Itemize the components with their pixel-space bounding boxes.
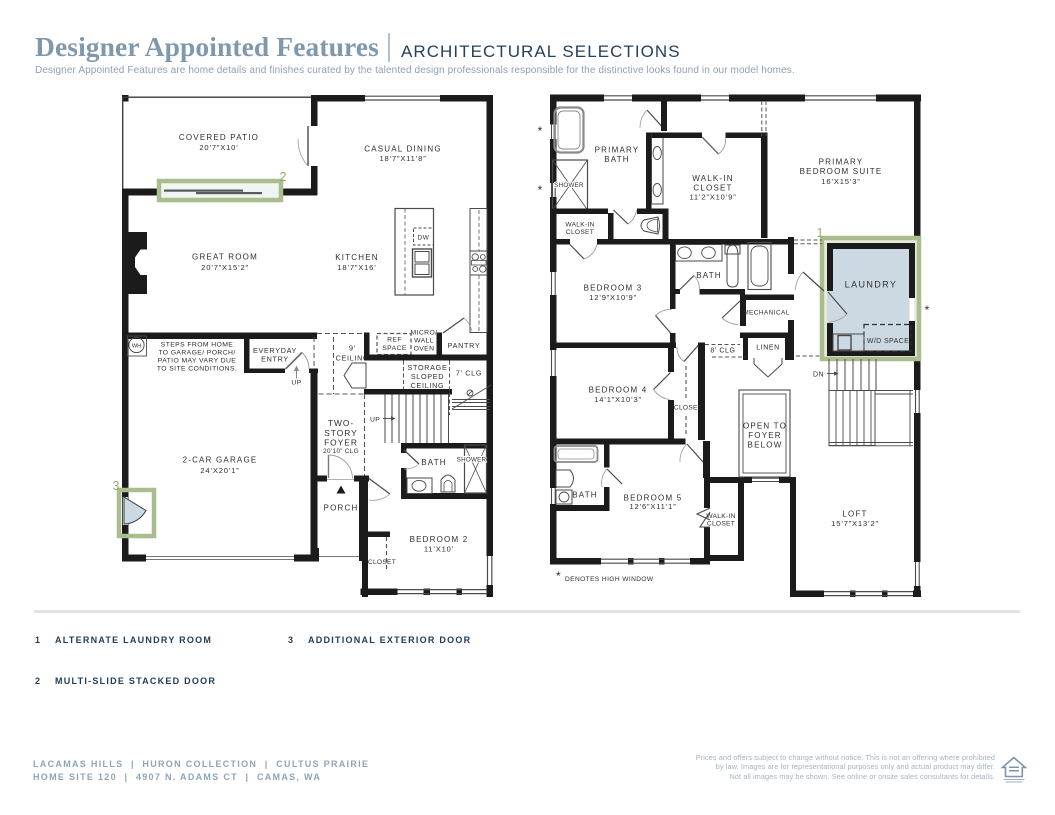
svg-text:7’ CLG: 7’ CLG [456,369,482,378]
svg-text:18’7”X11’8”: 18’7”X11’8” [379,154,426,163]
svg-text:*: * [538,124,543,138]
svg-text:24’X20’1”: 24’X20’1” [200,466,239,475]
svg-text:BEDROOM 2: BEDROOM 2 [410,535,469,544]
svg-text:STORAGE: STORAGE [408,363,448,372]
svg-text:20’10” CLG: 20’10” CLG [323,448,359,455]
svg-text:CASUAL DINING: CASUAL DINING [364,145,442,154]
svg-text:20’7”X15’2”: 20’7”X15’2” [201,263,249,272]
svg-text:TO SITE CONDITIONS.: TO SITE CONDITIONS. [157,366,237,373]
svg-text:BATH: BATH [696,271,722,280]
svg-text:11’2”X10’9”: 11’2”X10’9” [689,193,736,202]
svg-text:DW: DW [418,235,430,242]
svg-text:2: 2 [280,170,287,184]
svg-text:CLOSET: CLOSET [674,405,702,412]
svg-text:CLOSET: CLOSET [566,229,594,236]
svg-text:9’: 9’ [349,344,356,353]
svg-text:PRIMARY: PRIMARY [819,158,864,167]
svg-text:DN: DN [813,372,824,379]
svg-text:UP: UP [291,380,301,387]
svg-text:*: * [925,303,930,317]
svg-text:SHOWER: SHOWER [554,182,584,189]
svg-text:18’7”X16’: 18’7”X16’ [337,263,376,272]
svg-text:TWO-: TWO- [328,418,354,428]
svg-text:STEPS FROM HOME: STEPS FROM HOME [161,342,234,349]
svg-text:REF: REF [387,337,402,344]
svg-text:OVEN: OVEN [414,346,435,353]
svg-text:FOYER: FOYER [324,438,358,448]
svg-text:CLOSET: CLOSET [368,559,396,566]
svg-text:BATH: BATH [572,491,598,500]
svg-text:PORCH: PORCH [324,504,359,513]
svg-text:12’9”X10’9”: 12’9”X10’9” [589,293,637,302]
svg-text:16’X15’3”: 16’X15’3” [821,177,860,186]
svg-text:BATH: BATH [604,155,630,164]
svg-text:CLOSET: CLOSET [693,184,732,193]
svg-text:CEILING: CEILING [411,381,445,390]
svg-text:WALK-IN: WALK-IN [565,222,594,229]
svg-text:15’7”X13’2”: 15’7”X13’2” [831,519,879,528]
svg-text:11’X10’: 11’X10’ [424,545,454,554]
svg-text:W/D SPACE: W/D SPACE [867,338,909,345]
svg-text:WALL: WALL [414,338,434,345]
svg-text:GREAT ROOM: GREAT ROOM [192,253,258,262]
svg-text:12’6”X11’1”: 12’6”X11’1” [629,502,676,511]
svg-text:KITCHEN: KITCHEN [335,253,379,262]
svg-text:3: 3 [113,479,120,493]
svg-text:UP: UP [370,417,380,424]
svg-text:FOYER: FOYER [748,431,782,440]
svg-text:LAUNDRY: LAUNDRY [845,280,898,290]
svg-text:STORY: STORY [324,428,358,438]
svg-text:8’ CLG: 8’ CLG [710,348,735,355]
svg-text:BATH: BATH [421,458,447,467]
svg-text:PANTRY: PANTRY [448,341,481,350]
svg-text:DENOTES HIGH WINDOW: DENOTES HIGH WINDOW [565,576,654,583]
svg-text:LOFT: LOFT [842,510,867,519]
svg-text:*: * [556,569,561,583]
svg-text:OPEN TO: OPEN TO [743,422,787,431]
svg-text:BEDROOM 4: BEDROOM 4 [589,386,648,395]
svg-text:1: 1 [817,226,824,240]
svg-text:PATIO MAY VARY DUE: PATIO MAY VARY DUE [158,358,237,365]
svg-text:20’7”X10’: 20’7”X10’ [199,143,238,152]
svg-text:BEDROOM 3: BEDROOM 3 [584,284,643,293]
svg-text:MECHANICAL: MECHANICAL [743,310,790,317]
svg-text:WH: WH [132,344,141,350]
svg-text:CLOSET: CLOSET [707,521,735,528]
svg-text:COVERED PATIO: COVERED PATIO [179,133,259,142]
svg-text:BELOW: BELOW [748,441,783,450]
svg-text:SLOPED: SLOPED [411,372,444,381]
svg-text:SPACE: SPACE [382,345,407,352]
svg-text:LINEN: LINEN [756,345,780,352]
svg-text:WALK-IN: WALK-IN [692,174,733,183]
svg-text:ENTRY: ENTRY [261,355,289,364]
svg-text:14’1”X10’3”: 14’1”X10’3” [594,395,642,404]
svg-text:MICRO/: MICRO/ [411,330,438,337]
svg-text:BEDROOM SUITE: BEDROOM SUITE [800,167,883,176]
svg-text:TO GARAGE/ PORCH/: TO GARAGE/ PORCH/ [158,350,235,357]
svg-text:PRIMARY: PRIMARY [595,146,640,155]
svg-text:WALK-IN: WALK-IN [706,513,735,520]
svg-text:SHOWER: SHOWER [457,457,487,464]
svg-text:*: * [538,183,543,197]
svg-text:2-CAR GARAGE: 2-CAR GARAGE [183,456,258,465]
